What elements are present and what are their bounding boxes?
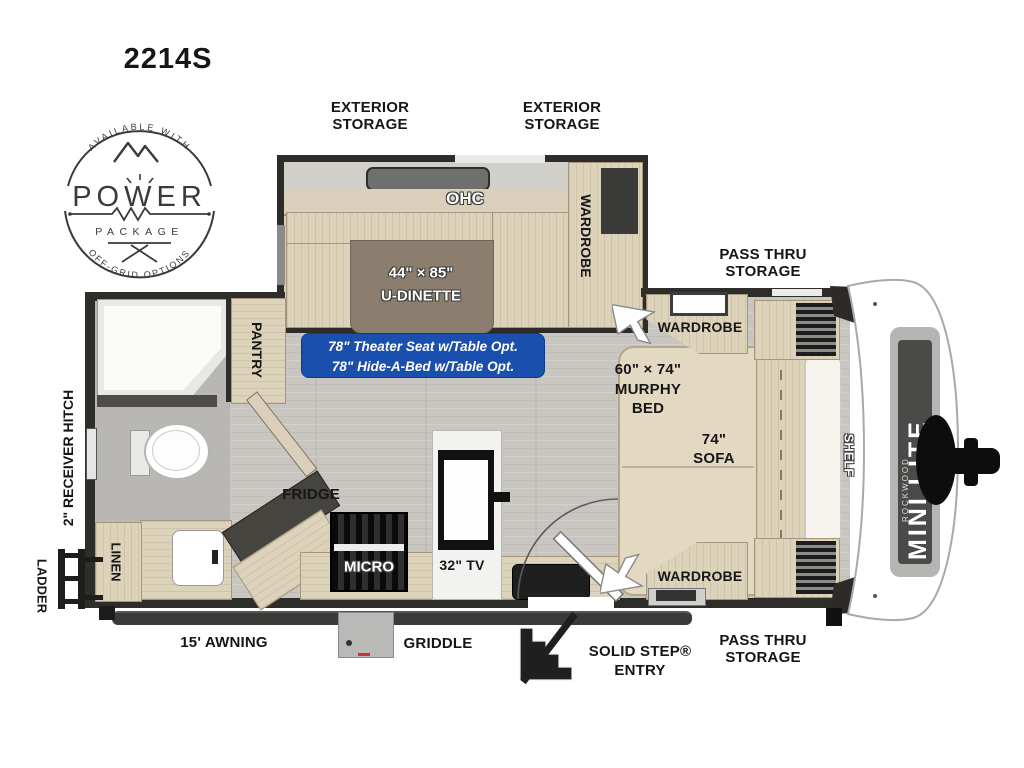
side-tray-screen bbox=[656, 590, 696, 601]
floorplan-canvas: 2214S AVAILABLE WITH POWER PACKAGE OFF-G… bbox=[0, 0, 1024, 768]
toilet-seat bbox=[152, 430, 200, 471]
fridge-label: FRIDGE bbox=[276, 487, 346, 504]
pass-thru-bottom-label: PASS THRU STORAGE bbox=[703, 633, 823, 666]
pass-thru-top-label: PASS THRU STORAGE bbox=[703, 247, 823, 280]
badge-name: POWER bbox=[72, 181, 207, 213]
slide-hatch bbox=[455, 155, 545, 163]
range-shelf bbox=[334, 544, 404, 551]
wardrobe-top-label: WARDROBE bbox=[648, 320, 752, 335]
top-wall-window bbox=[772, 289, 822, 296]
tent-icon bbox=[108, 243, 171, 262]
sofa-label: 74" SOFA bbox=[679, 431, 749, 469]
dinette-bench-right bbox=[492, 212, 570, 328]
griddle-knob bbox=[346, 640, 352, 646]
awning-label: 15' AWNING bbox=[154, 635, 294, 652]
badge-bottom-text: OFF-GRID OPTIONS bbox=[87, 247, 193, 280]
power-package-badge: AVAILABLE WITH POWER PACKAGE OFF-GRID OP… bbox=[52, 110, 227, 285]
griddle-mark bbox=[358, 653, 370, 656]
wardrobe-bottom-label: WARDROBE bbox=[650, 569, 750, 584]
badge-sub: PACKAGE bbox=[95, 226, 184, 238]
badge-top-text: AVAILABLE WITH bbox=[86, 122, 193, 153]
murphy-bed-panel bbox=[756, 352, 808, 552]
griddle-label: GRIDDLE bbox=[398, 636, 478, 653]
slide-window bbox=[366, 167, 490, 191]
tv-screen bbox=[444, 460, 488, 540]
entry-steps-icon bbox=[505, 608, 595, 693]
svg-text:AVAILABLE WITH: AVAILABLE WITH bbox=[86, 122, 193, 153]
griddle bbox=[338, 612, 394, 658]
svg-text:OFF-GRID OPTIONS: OFF-GRID OPTIONS bbox=[87, 247, 193, 280]
awning-bar bbox=[112, 611, 692, 625]
murphy-bed-seam bbox=[780, 362, 782, 540]
shower-threshold bbox=[97, 395, 217, 407]
slide-wardrobe-interior bbox=[601, 168, 638, 234]
options-callout: 78" Theater Seat w/Table Opt. 78" Hide-A… bbox=[301, 333, 545, 378]
murphy-bed-label: 60" × 74" MURPHY BED bbox=[603, 360, 693, 419]
range-micro bbox=[330, 512, 408, 592]
tv-label: 32" TV bbox=[426, 558, 498, 573]
exterior-storage-label-1: EXTERIOR STORAGE bbox=[310, 100, 430, 133]
bath-faucet bbox=[212, 550, 218, 564]
model-number: 2214S bbox=[108, 44, 228, 76]
wardrobe-bottom-arrow-icon bbox=[600, 548, 648, 602]
exterior-storage-label-2: EXTERIOR STORAGE bbox=[502, 100, 622, 133]
rear-window bbox=[86, 428, 97, 480]
ladder-icon bbox=[50, 545, 110, 615]
skylight-vent bbox=[670, 292, 728, 316]
entry-label: SOLID STEP® ENTRY bbox=[585, 643, 695, 681]
rear-bumper-bracket bbox=[826, 608, 842, 626]
mountain-icon bbox=[114, 143, 158, 162]
slide-side-window bbox=[277, 225, 285, 285]
front-cap: ROCKWOOD MINI LITE bbox=[818, 272, 1024, 628]
